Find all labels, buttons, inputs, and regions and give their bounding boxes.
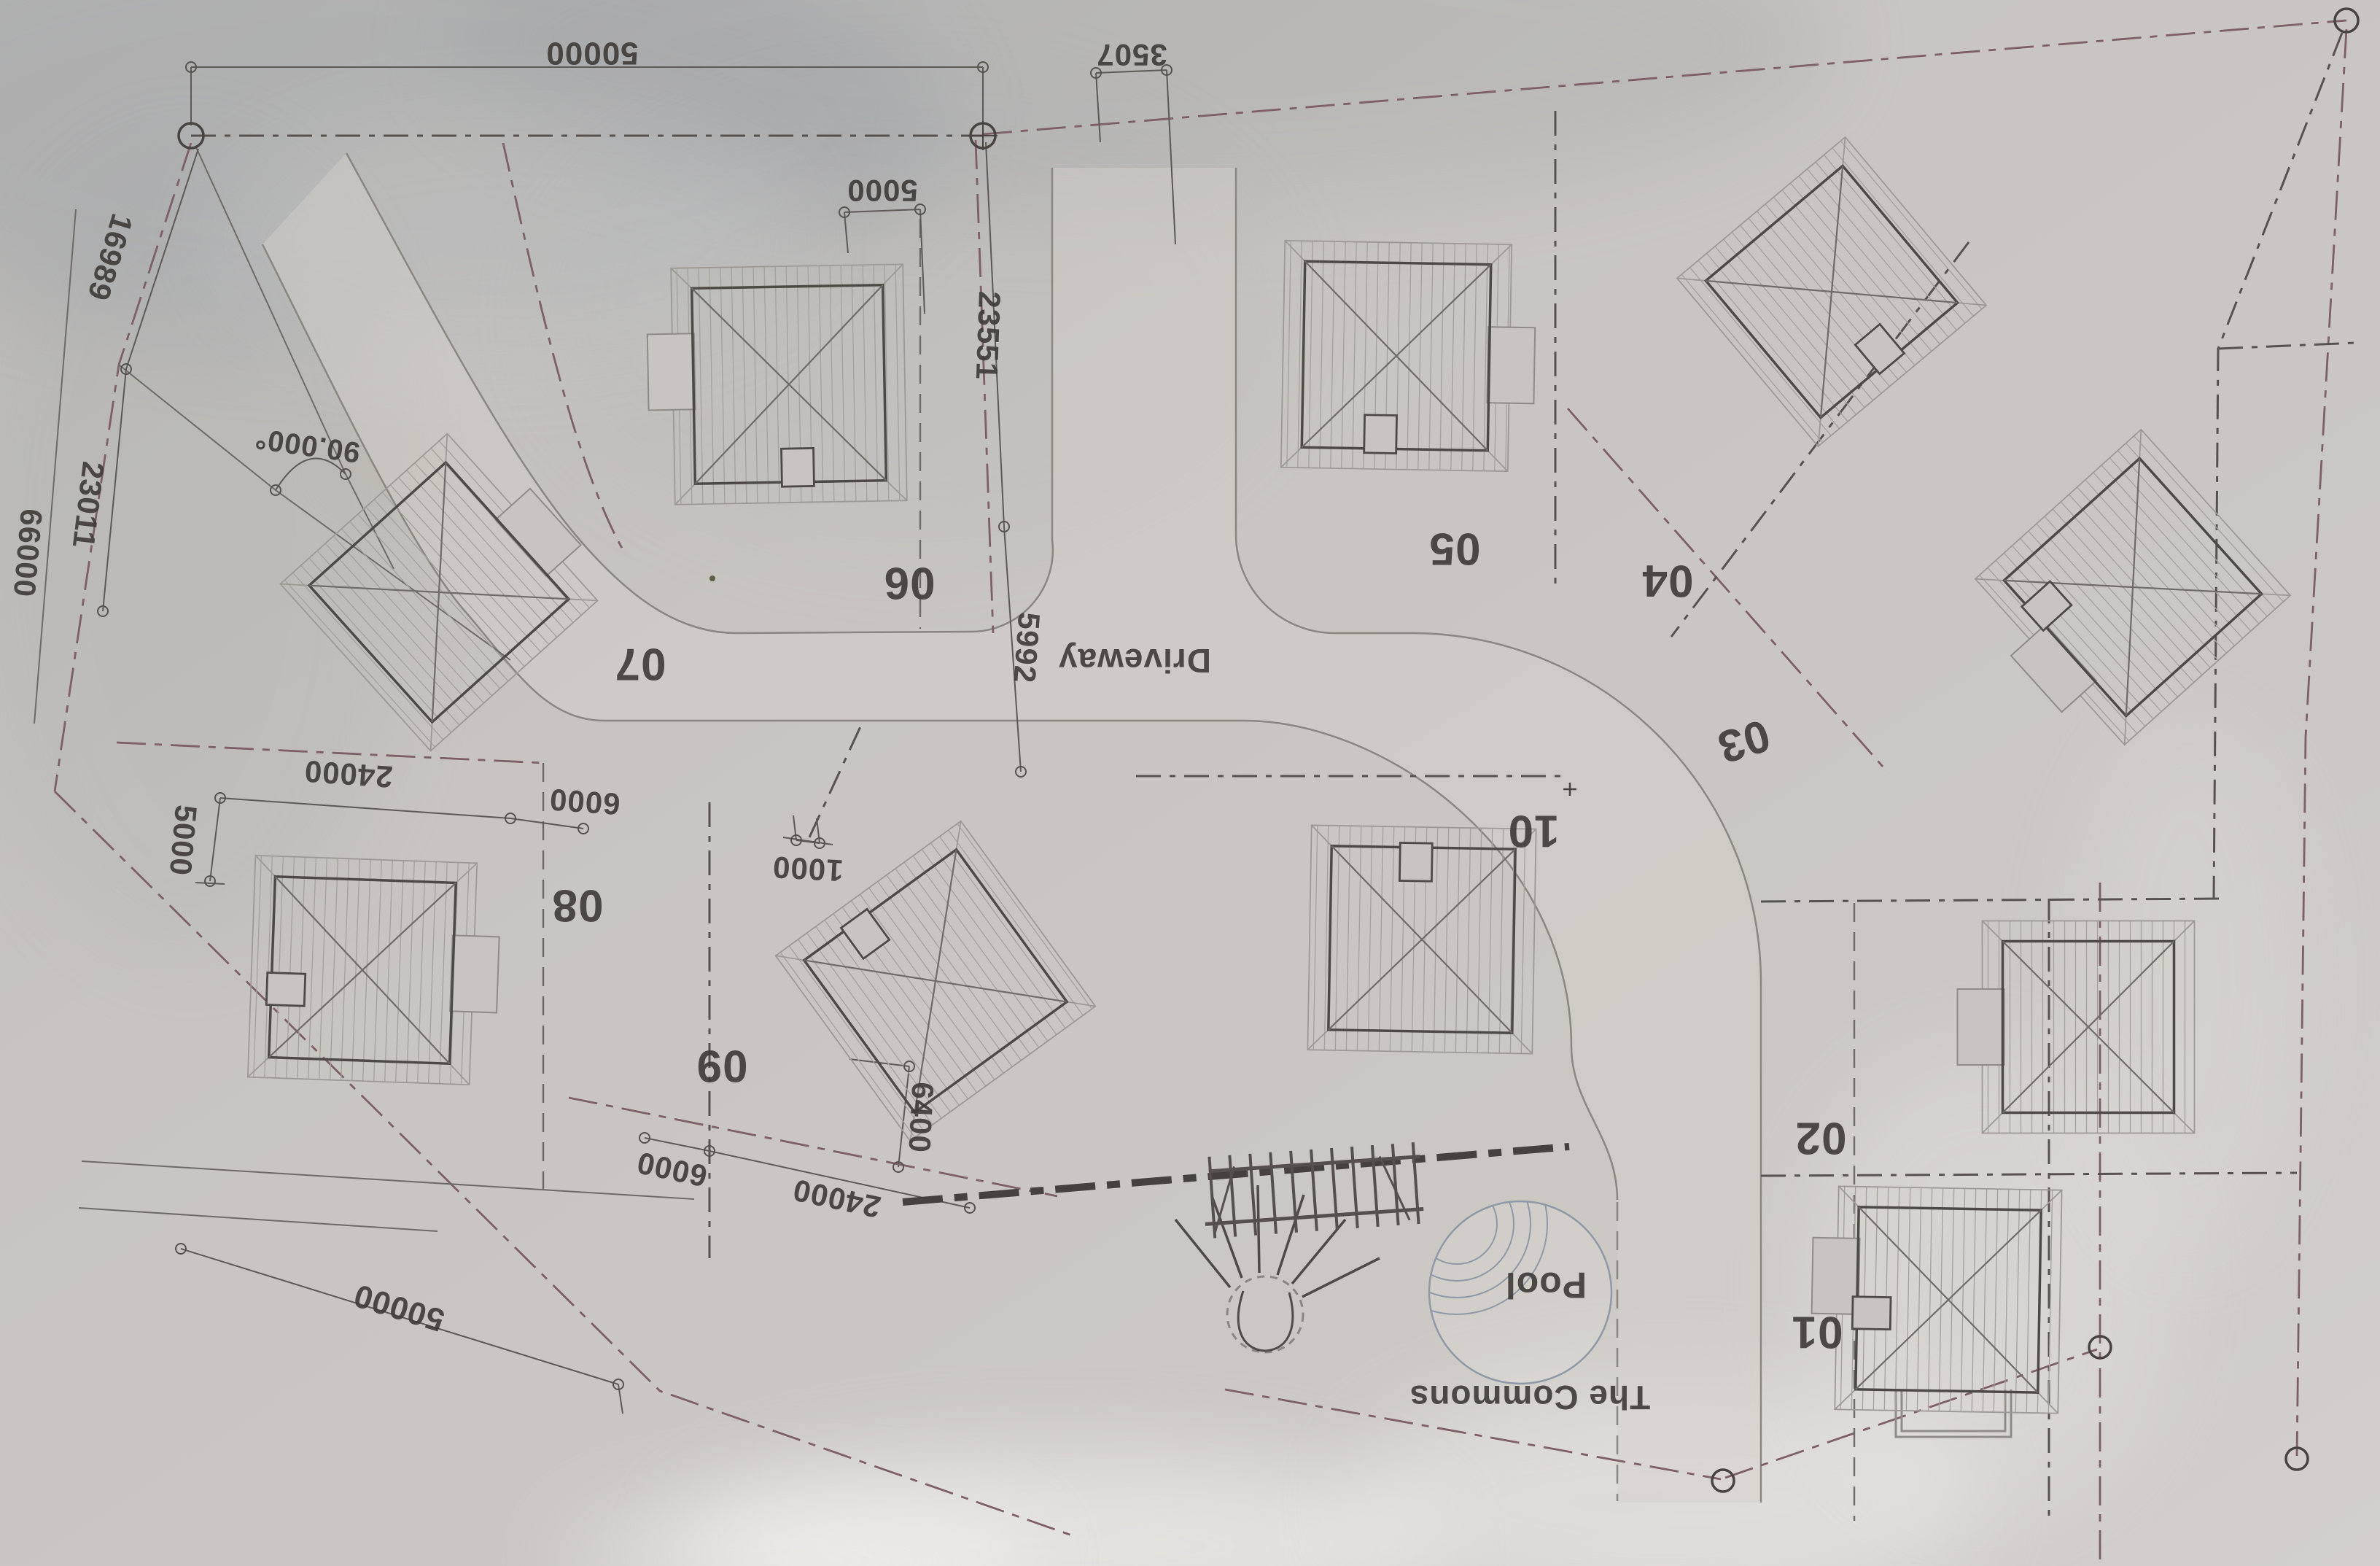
dim-5000-left-label: 5000 [163,804,203,877]
lot-02-label: 02 [1795,1113,1847,1163]
dim-1000-label: 1000 [771,850,844,888]
lot-10-label: 10 [1508,806,1560,856]
chimney-outline [1399,842,1432,881]
chimney-outline [1364,415,1397,454]
dim-6400-label: 6400 [902,1081,940,1154]
site-plan-photo: 500003507500023551599216989230116600090.… [0,0,2380,1566]
commons-label: The Commons [1409,1379,1650,1416]
porch-outline [647,333,696,410]
chimney-outline [266,972,306,1006]
speck-stain [709,575,715,581]
driveway-label: Driveway [1058,642,1211,680]
site-plan-drawing: 500003507500023551599216989230116600090.… [0,0,2380,1566]
dim-24000-left-label: 24000 [303,754,394,794]
dim-5000-top-label: 5000 [847,174,917,208]
chimney-outline [782,448,814,487]
dim-6000-left-label: 6000 [548,783,621,822]
dim-5992-label: 5992 [1008,611,1047,684]
lot-01-label: 01 [1792,1307,1843,1357]
chimney-outline [1852,1297,1891,1330]
lot-09-label: 09 [696,1041,748,1091]
lot-07-label: 07 [615,639,666,689]
pool-label: Pool [1505,1265,1587,1306]
dim-3507-label: 3507 [1096,38,1167,72]
porch-outline [450,935,499,1012]
lot-04-label: 04 [1642,556,1694,606]
lot-05-label: 05 [1429,524,1481,574]
lot-08-label: 08 [552,880,604,931]
dim-top-width-label: 50000 [545,35,638,71]
porch-outline [1487,327,1535,403]
porch-outline [1958,989,2004,1065]
lot-06-label: 06 [884,558,936,608]
dim-23551-label: 23551 [970,290,1007,380]
